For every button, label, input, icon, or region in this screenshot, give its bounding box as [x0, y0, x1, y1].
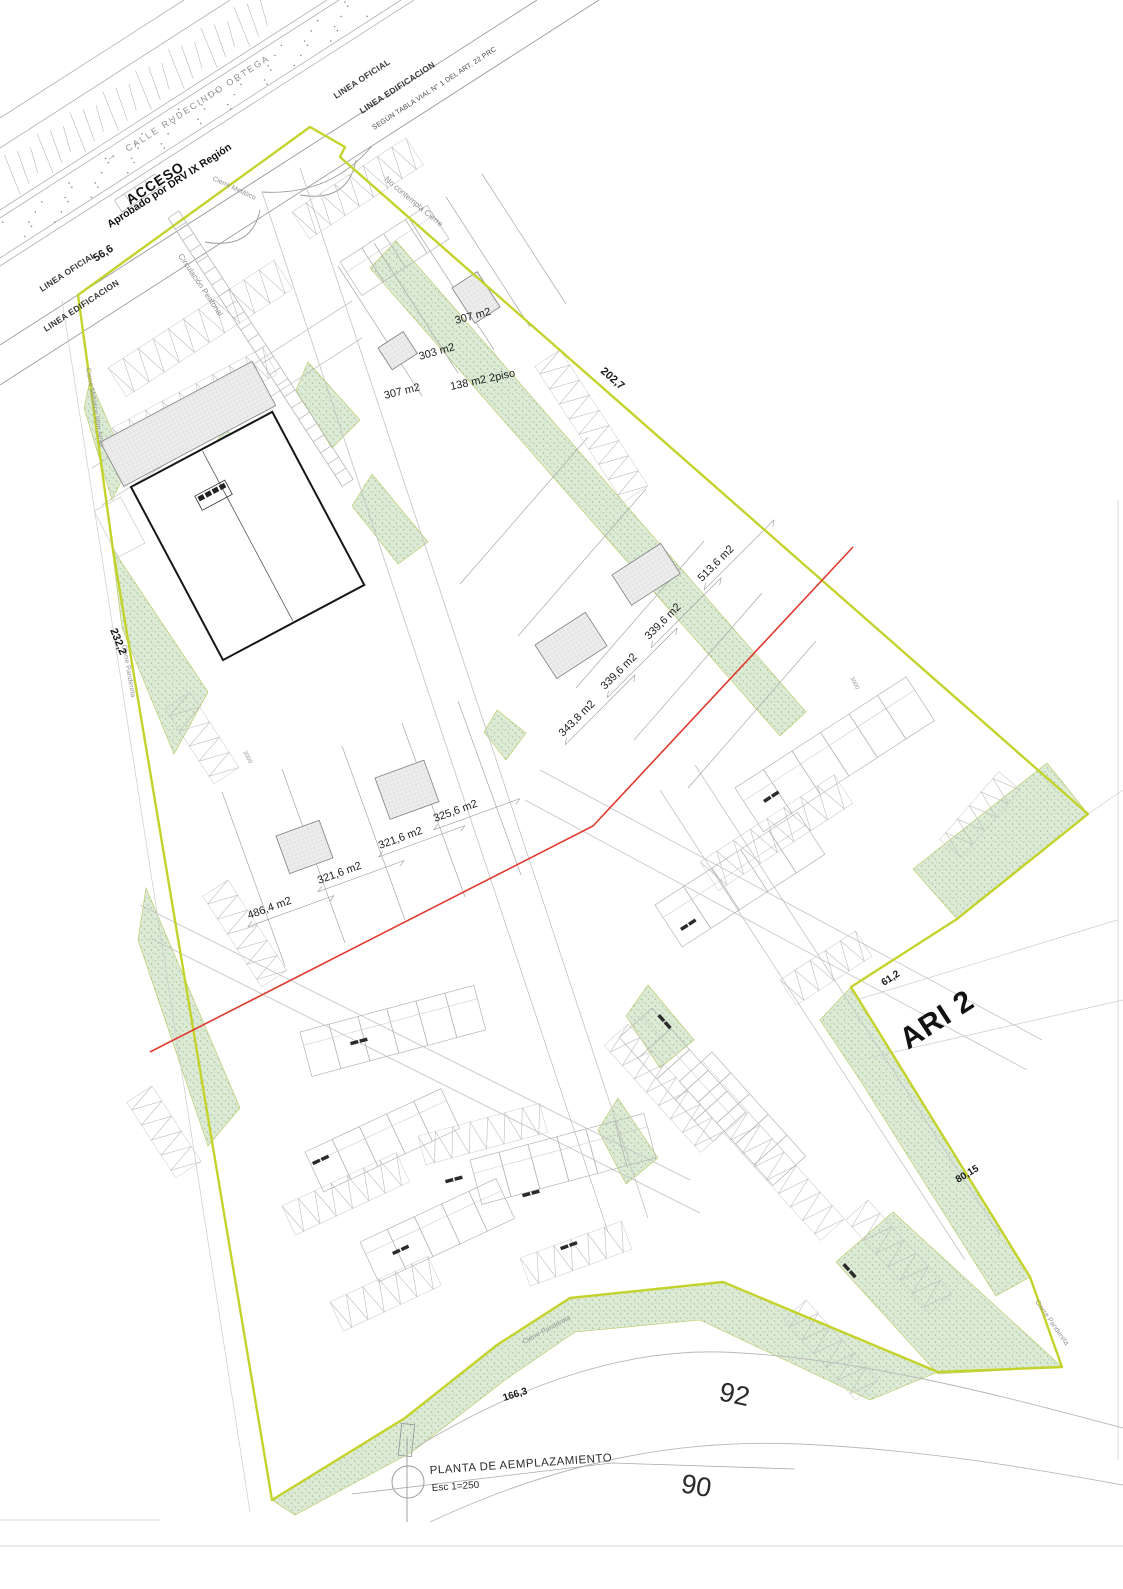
ari2-zone-label: ARI 2: [894, 984, 980, 1056]
contour-90-label: 90: [679, 1468, 714, 1503]
street-arrow-icon: →: [103, 148, 119, 164]
vehicle-icon: [763, 790, 780, 802]
dim-61-label: 61,2: [880, 968, 903, 988]
tree-band: [282, 1153, 410, 1235]
road-width-label: 3000: [241, 750, 253, 765]
tree-band: [418, 1103, 547, 1165]
street-lines: [0, 0, 599, 385]
street-hatch-ticks: [4, 0, 267, 194]
street-name: CALLE RUDECINDO ORTEGA: [124, 53, 272, 154]
lot-area-label: 321,6 m2: [377, 825, 424, 852]
street-stipple: [2, 1, 368, 237]
house-hatched: [276, 820, 333, 873]
house-row: [679, 1052, 805, 1185]
tree-band: [724, 1112, 844, 1240]
sheet-scale: Esc 1=250: [431, 1480, 480, 1494]
tree-band: [780, 931, 872, 1005]
house-hatched: [375, 760, 439, 819]
vehicle-icon: [445, 1175, 463, 1183]
site-plan-drawing: → CALLE RUDECINDO ORTEGA → ACCESO Aproba…: [0, 0, 1123, 1589]
dim-56-label: 56,6: [91, 243, 116, 265]
lot-area-label: 321,6 m2: [316, 860, 363, 887]
house-hatched: [535, 612, 607, 678]
tree-band: [127, 1086, 201, 1178]
vehicle-icon: [312, 1155, 329, 1166]
tree-band: [330, 1256, 441, 1331]
vegetation-area: [370, 241, 806, 736]
road-width-label: 3000: [848, 676, 860, 691]
lot-area-label: 307 m2: [383, 381, 422, 402]
circulacion-peatonal-label: Circulación Peatonal: [176, 252, 225, 318]
vegetation-area: [913, 763, 1088, 919]
tree-band: [520, 1221, 632, 1286]
sheet-title: PLANTA DE AEMPLAZAMIENTO: [429, 1452, 612, 1477]
vehicle-icon: [522, 1189, 540, 1197]
vehicle-icon: [680, 918, 697, 930]
vegetation-area: [626, 985, 694, 1068]
vegetation-area: [272, 1282, 938, 1515]
house-row: [655, 812, 825, 947]
dimension-leader: [701, 517, 777, 593]
vegetation-area: [296, 362, 360, 448]
contour-92-label: 92: [717, 1377, 753, 1413]
vegetation-area: [484, 710, 526, 760]
dimension-leader: [604, 625, 680, 701]
contour-lines: [415, 1352, 1123, 1522]
site-plan-page: → CALLE RUDECINDO ORTEGA → ACCESO Aproba…: [0, 0, 1123, 1589]
cierre-metalico-top-label: Cierre Metálico: [211, 175, 257, 201]
vegetation-area: [138, 888, 240, 1146]
dim-166-label: 166,3: [502, 1386, 530, 1404]
vehicle-icon: [392, 1245, 409, 1256]
lot-area-label: 486,4 m2: [246, 895, 293, 922]
curb-returns: [205, 146, 372, 243]
